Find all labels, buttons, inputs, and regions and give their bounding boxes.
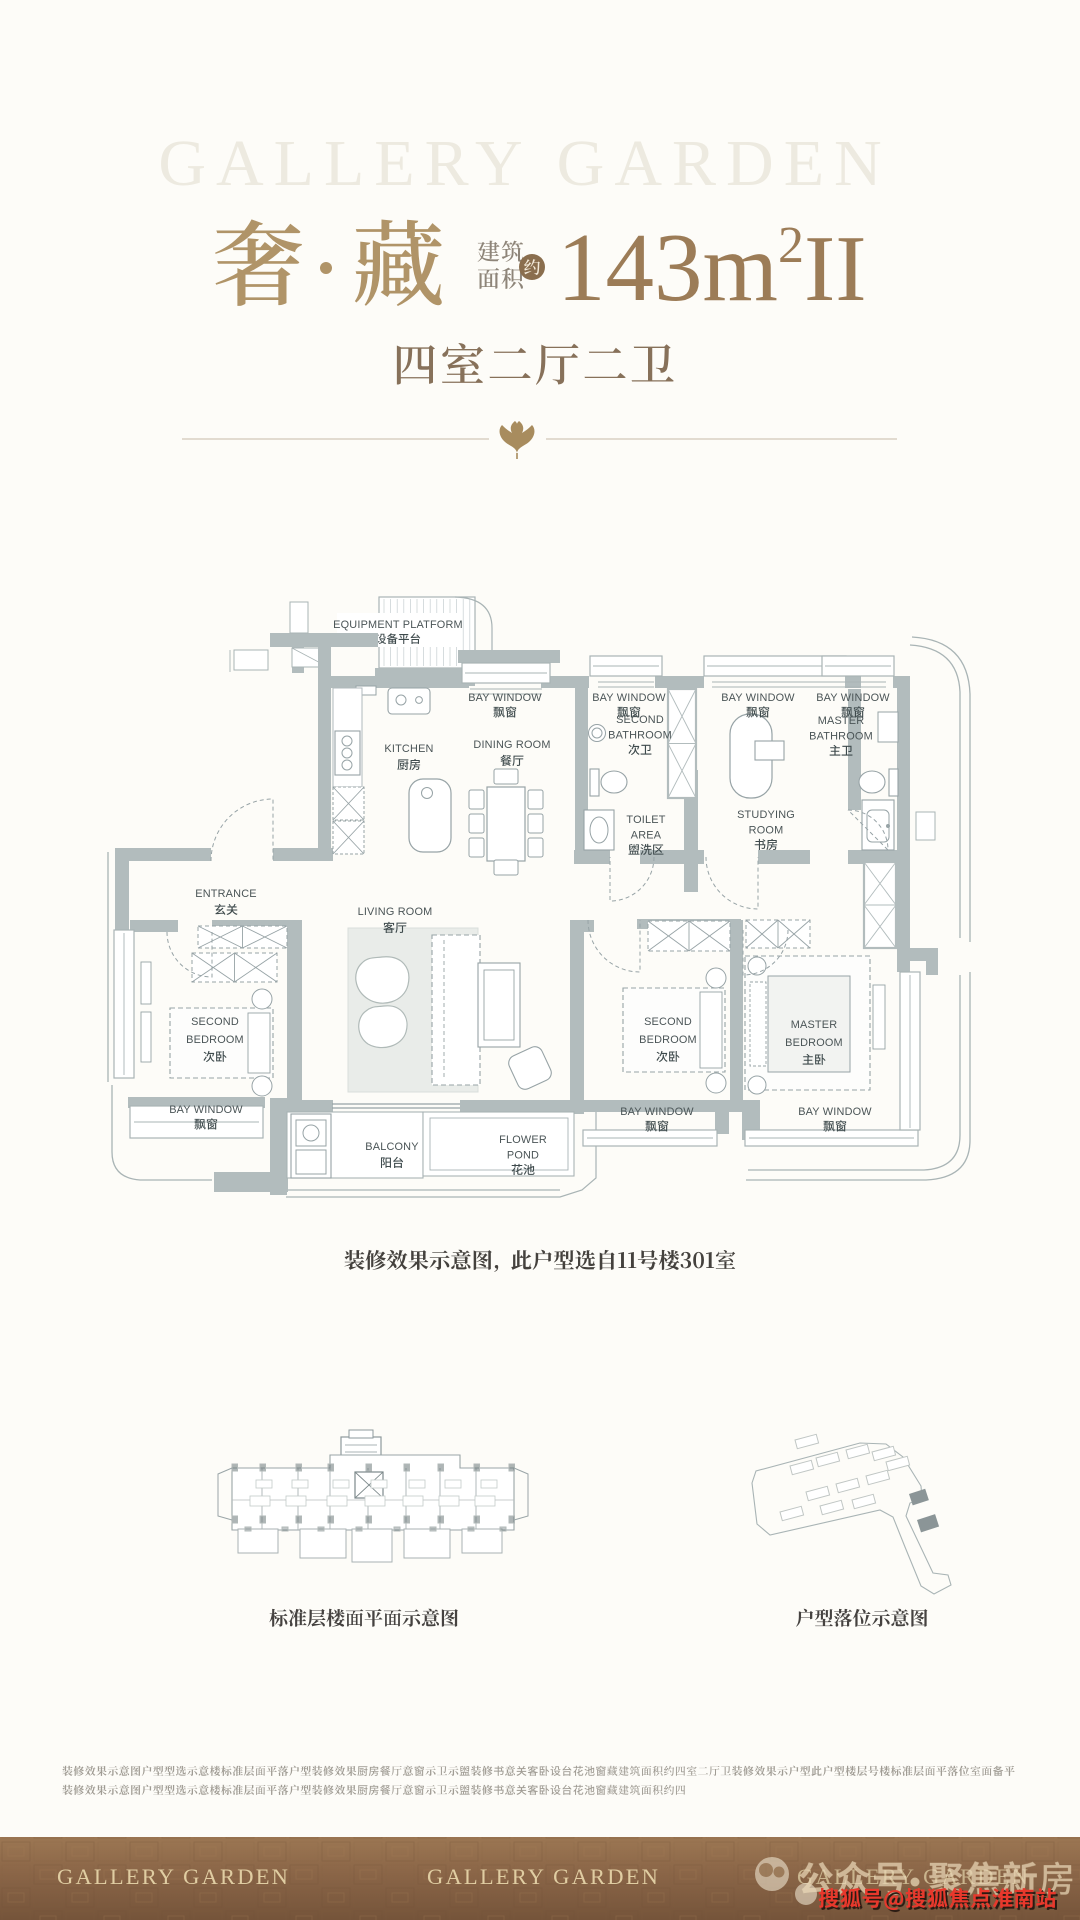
svg-text:GALLERY GARDEN: GALLERY GARDEN [158,127,891,200]
svg-text:KITCHEN: KITCHEN [384,743,433,755]
svg-text:FLOWER: FLOWER [499,1134,547,1146]
svg-text:SECOND: SECOND [191,1016,239,1028]
svg-text:BAY WINDOW: BAY WINDOW [816,692,890,704]
svg-text:143m2II: 143m2II [557,214,867,321]
svg-text:TOILET: TOILET [626,814,665,826]
svg-text:STUDYING: STUDYING [737,809,795,821]
svg-text:BAY WINDOW: BAY WINDOW [169,1104,243,1116]
svg-text:BEDROOM: BEDROOM [785,1037,843,1049]
svg-text:BEDROOM: BEDROOM [639,1034,697,1046]
svg-text:BAY WINDOW: BAY WINDOW [721,692,795,704]
svg-text:LIVING ROOM: LIVING ROOM [358,906,433,918]
svg-text:MASTER: MASTER [818,715,865,727]
svg-text:GALLERY GARDEN: GALLERY GARDEN [57,1864,290,1889]
svg-text:DINING ROOM: DINING ROOM [473,739,550,751]
svg-text:BATHROOM: BATHROOM [809,731,873,743]
svg-text:BAY WINDOW: BAY WINDOW [620,1106,694,1118]
svg-text:EQUIPMENT PLATFORM: EQUIPMENT PLATFORM [333,619,463,631]
svg-text:BAY WINDOW: BAY WINDOW [798,1106,872,1118]
svg-text:POND: POND [507,1150,539,1162]
svg-text:SECOND: SECOND [644,1016,692,1028]
svg-text:BALCONY: BALCONY [365,1141,419,1153]
svg-text:GALLERY GARDEN: GALLERY GARDEN [427,1864,660,1889]
svg-text:BAY WINDOW: BAY WINDOW [592,692,666,704]
svg-text:MASTER: MASTER [791,1019,838,1031]
svg-text:ENTRANCE: ENTRANCE [195,888,257,900]
svg-text:ROOM: ROOM [749,825,784,837]
svg-text:BAY WINDOW: BAY WINDOW [468,692,542,704]
svg-text:BATHROOM: BATHROOM [608,730,672,742]
svg-text:AREA: AREA [631,830,662,842]
svg-text:BEDROOM: BEDROOM [186,1034,244,1046]
svg-text:SECOND: SECOND [616,714,664,726]
